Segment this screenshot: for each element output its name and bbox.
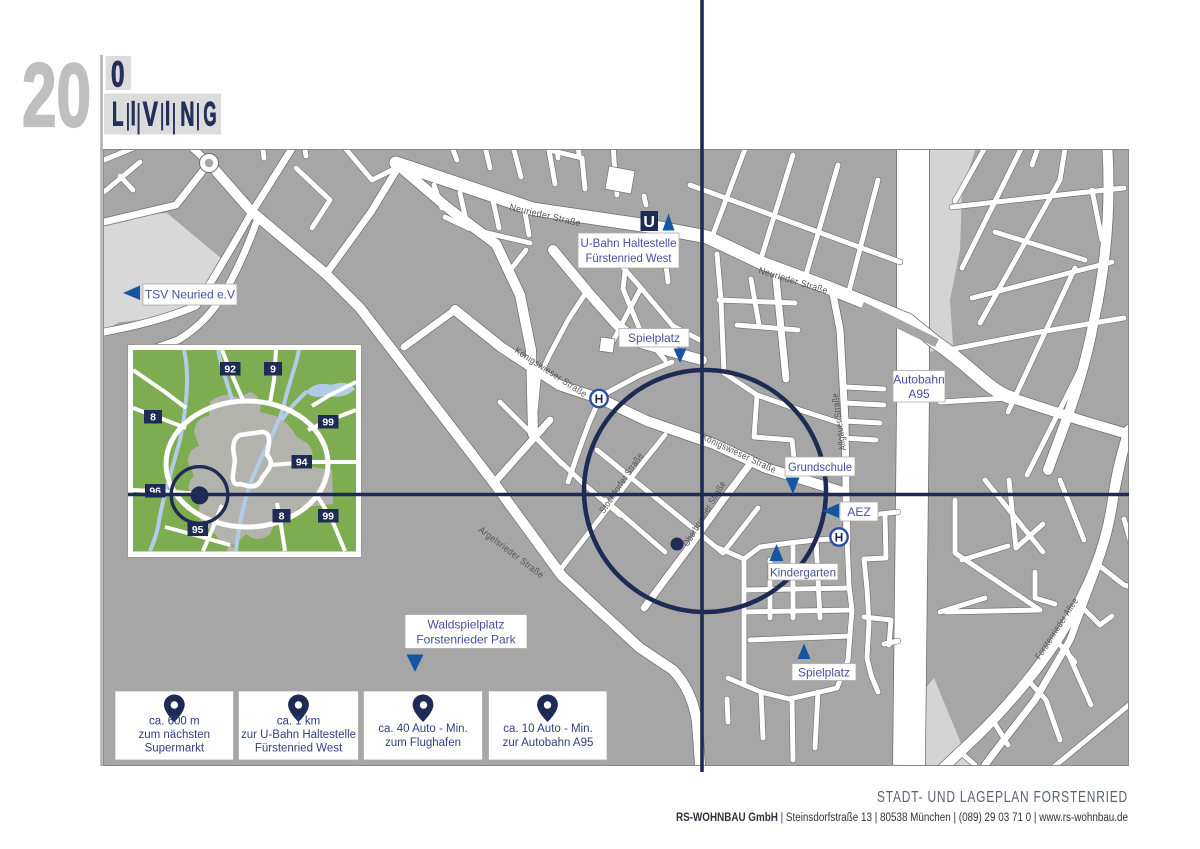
svg-text:Spielplatz: Spielplatz (628, 331, 680, 345)
svg-text:ca. 1 km: ca. 1 km (277, 716, 320, 728)
svg-text:Autobahn: Autobahn (893, 373, 944, 387)
svg-text:99: 99 (322, 511, 334, 523)
svg-text:zum Flughafen: zum Flughafen (385, 737, 461, 749)
svg-text:95: 95 (192, 524, 204, 536)
svg-text:20: 20 (22, 46, 91, 146)
svg-text:RS-WOHNBAU GmbH | Steinsdorfst: RS-WOHNBAU GmbH | Steinsdorfstraße 13 | … (676, 812, 1128, 824)
svg-text:STADT- UND LAGEPLAN FORSTENRIE: STADT- UND LAGEPLAN FORSTENRIED (877, 789, 1128, 806)
svg-text:0: 0 (111, 54, 125, 95)
svg-text:zur U-Bahn Haltestelle: zur U-Bahn Haltestelle (241, 729, 356, 741)
svg-text:A95: A95 (908, 387, 930, 401)
svg-text:ca. 600 m: ca. 600 m (149, 716, 200, 728)
svg-text:8: 8 (150, 412, 156, 424)
svg-text:Fürstenried West: Fürstenried West (586, 251, 673, 265)
svg-text:Grundschule: Grundschule (788, 460, 852, 474)
svg-text:Supermarkt: Supermarkt (145, 743, 205, 755)
svg-text:V: V (143, 96, 158, 134)
svg-text:Fürstenried West: Fürstenried West (255, 743, 343, 755)
svg-text:H: H (835, 530, 844, 544)
svg-text:H: H (595, 392, 604, 406)
svg-text:Kindergarten: Kindergarten (770, 566, 836, 580)
svg-text:U-Bahn Haltestelle: U-Bahn Haltestelle (581, 236, 677, 250)
svg-text:TSV Neuried e.V: TSV Neuried e.V (145, 288, 235, 302)
svg-text:9: 9 (270, 364, 276, 376)
svg-text:ca. 40 Auto - Min.: ca. 40 Auto - Min. (378, 723, 468, 735)
svg-text:Forstenrieder Park: Forstenrieder Park (416, 633, 516, 647)
svg-text:8: 8 (279, 511, 285, 523)
svg-text:Spielplatz: Spielplatz (798, 666, 850, 680)
svg-text:99: 99 (322, 417, 334, 429)
svg-text:U: U (643, 214, 655, 231)
svg-text:94: 94 (296, 457, 308, 469)
svg-text:92: 92 (224, 364, 236, 376)
svg-text:Waldspielplatz: Waldspielplatz (428, 618, 505, 632)
svg-text:ca. 10 Auto - Min.: ca. 10 Auto - Min. (503, 723, 593, 735)
svg-text:zum nächsten: zum nächsten (138, 729, 210, 741)
svg-text:L: L (112, 96, 124, 134)
svg-text:G: G (203, 96, 216, 134)
svg-text:zur Autobahn A95: zur Autobahn A95 (503, 737, 594, 749)
svg-text:N: N (180, 96, 194, 134)
svg-text:AEZ: AEZ (847, 505, 870, 519)
